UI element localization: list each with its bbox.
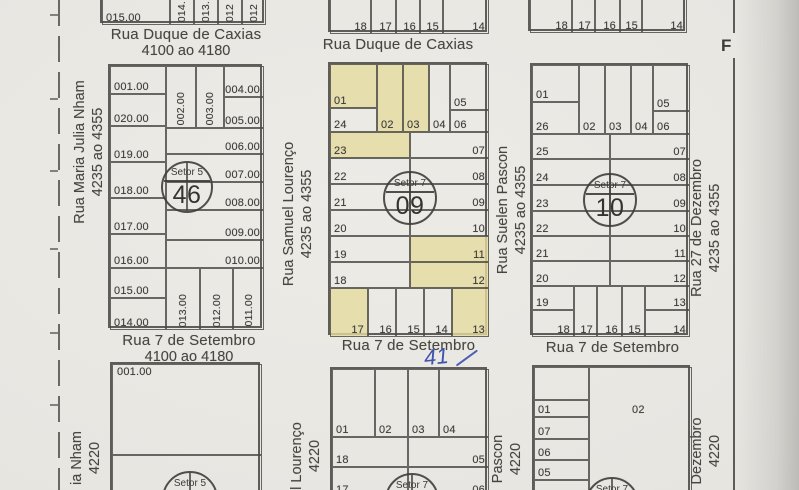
street-label-samuel-lourenco: Rua Samuel Lourenço 4235 ao 4355 (280, 142, 316, 286)
lot-cell-04: 04 (429, 64, 450, 132)
lot-number: 26 (536, 121, 549, 133)
lot-cell-05: 05 (408, 437, 489, 467)
lot-cell-003.00: 003.00 (196, 66, 224, 128)
lot-number: 014. (176, 1, 188, 22)
lot-cell-017.00: 017.00 (110, 198, 166, 234)
lot-number: 16 (379, 324, 392, 336)
lot-cell-015.00: 015.00 (110, 268, 166, 298)
lot-cell-002.00: 002.00 (166, 66, 196, 128)
lot-number: 001.00 (117, 366, 152, 378)
lot-number: 22 (334, 171, 347, 183)
quadra-number: 09 (385, 192, 435, 221)
lot-number: 21 (334, 197, 347, 209)
lot-cell-05: 05 (653, 65, 690, 111)
lot-number: 05 (657, 98, 670, 110)
lot-number: 06 (472, 484, 485, 490)
lot-number: 16 (603, 20, 616, 32)
lot-cell-011.00: 011.00 (233, 268, 264, 330)
lot-cell-25: 25 (532, 134, 610, 159)
lot-cell-016.00: 016.00 (110, 234, 166, 268)
lot-number: 016.00 (114, 255, 149, 267)
street-label-7-setembro-left: Rua 7 de Setembro 4100 ao 4180 (104, 332, 274, 365)
lot-number: 03 (407, 119, 420, 131)
lot-number: 02 (632, 404, 645, 416)
lot-number: 07 (472, 145, 485, 157)
lot-cell-01: 01 (532, 65, 579, 102)
lot-cell-009.00: 009.00 (166, 210, 264, 240)
lot-number: 15 (628, 324, 641, 336)
lot-number: 09 (472, 197, 485, 209)
setor-quadra-symbol: Setor 710 (583, 173, 637, 227)
bottom-middle-block: 0102030418051706Setor 7 (330, 367, 487, 490)
lot-cell-14: 14 (645, 310, 690, 337)
map-left-boundary-line (58, 0, 60, 490)
lot-number: 015.00 (106, 12, 141, 24)
street-label-27-dezembro: Rua 27 de Dezembro 4235 ao 4355 (688, 159, 724, 297)
lot-number: 15 (426, 21, 439, 33)
lot-number: 10 (472, 223, 485, 235)
lot-number: 17 (351, 324, 364, 336)
lot-cell-07: 07 (610, 134, 690, 159)
lot-cell-01: 01 (534, 400, 589, 417)
lot-cell-18: 18 (332, 437, 408, 467)
lot-number: 009.00 (225, 227, 260, 239)
lot-cell-001.00: 001.00 (110, 66, 166, 94)
lot-cell-005.00: 005.00 (224, 97, 264, 128)
lot-number: 08 (673, 172, 686, 184)
lot-number: 20 (334, 223, 347, 235)
lot-cell-11: 11 (410, 236, 489, 262)
lot-cell-019.00: 019.00 (110, 126, 166, 162)
block-quadra-46: 001.00020.00002.00003.00004.00005.00019.… (108, 64, 262, 328)
street-name: Rua 7 de Setembro (104, 332, 274, 349)
lot-number: 020.00 (114, 113, 149, 125)
top-right-partial-block: 1817161514 (528, 0, 685, 31)
lot-cell-05: 05 (450, 64, 489, 110)
lot-cell-16: 16 (396, 0, 420, 34)
street-range: 4100 ao 4180 (104, 349, 274, 365)
lot-cell-15: 15 (396, 288, 424, 337)
handwritten-note: 41 (423, 343, 450, 371)
setor-label: Setor 7 (587, 484, 637, 490)
top-left-partial-block: 015.00014.013.012012 (100, 0, 264, 23)
margin-letter-f: F (721, 36, 731, 56)
lot-number: 23 (536, 198, 549, 210)
lot-number: 01 (536, 89, 549, 101)
lot-number: 017.00 (114, 221, 149, 233)
lot-cell-20: 20 (532, 261, 610, 286)
lot-number: 018.00 (114, 185, 149, 197)
lot-cell-010.00: 010.00 (166, 240, 264, 268)
street-label-duque-de-caxias-mid: Rua Duque de Caxias (318, 36, 478, 53)
street-label-lourenco-lower: l Lourenço 4220 (288, 422, 324, 490)
lot-cell-17: 17 (574, 286, 597, 337)
setor-quadra-symbol: Setor 546 (161, 161, 213, 213)
lot-number: 14 (670, 20, 683, 32)
map-right-boundary-line (733, 0, 735, 33)
street-range: 4235 ao 4355 (706, 159, 724, 297)
lot-number: 002.00 (175, 92, 187, 125)
lot-cell-01: 01 (332, 369, 375, 437)
lot-number: 18 (334, 275, 347, 287)
street-name: ia Nham (68, 431, 86, 485)
lot-number: 06 (538, 447, 551, 459)
lot-number: 019.00 (114, 149, 149, 161)
lot-number: 14 (673, 324, 686, 336)
lot-cell-14: 14 (642, 0, 687, 33)
lot-number: 015.00 (114, 285, 149, 297)
block-quadra-09: 0124020304050623072208210920101911181217… (328, 62, 487, 335)
lot-number: 01 (336, 424, 349, 436)
street-label-dezembro-lower: Dezembro 4220 (688, 418, 724, 485)
lot-cell-06: 06 (450, 110, 489, 132)
lot-number: 014.00 (114, 317, 149, 329)
street-label-pascon-lower: Pascon 4220 (489, 435, 525, 483)
lot-cell-006.00: 006.00 (166, 128, 264, 154)
lot-cell-17: 17 (371, 0, 396, 34)
street-name: Rua 7 de Setembro (330, 337, 487, 354)
street-range: 4100 ao 4180 (104, 43, 268, 59)
street-name: Rua Samuel Lourenço (280, 142, 298, 286)
lot-number: 13 (673, 297, 686, 309)
street-label-nham-lower: ia Nham 4220 (68, 431, 104, 485)
lot-number: 08 (472, 171, 485, 183)
lot-cell-03: 03 (605, 65, 631, 134)
lot-cell-19: 19 (330, 236, 410, 262)
lot-number: 03 (412, 424, 425, 436)
lot-number: 22 (536, 223, 549, 235)
lot-number: 012 (224, 4, 236, 22)
street-label-duque-de-caxias-left: Rua Duque de Caxias 4100 ao 4180 (104, 26, 268, 59)
lot-number: 25 (536, 146, 549, 158)
lot-cell-012: 012 (242, 0, 266, 25)
lot-number: 15 (625, 20, 638, 32)
lot-cell-15: 15 (420, 0, 443, 34)
lot-cell-17: 17 (330, 288, 368, 337)
lot-number: 013. (200, 1, 212, 22)
lot-number: 12 (472, 275, 485, 287)
lot-number: 01 (334, 95, 347, 107)
boundary-tick (50, 332, 58, 334)
lot-cell-03: 03 (408, 369, 439, 437)
lot-cell-01: 01 (330, 64, 377, 108)
boundary-tick (50, 170, 58, 172)
lot-cell-015.00: 015.00 (102, 0, 170, 25)
lot-number: 010.00 (225, 255, 260, 267)
lot-cell-02: 02 (579, 65, 605, 134)
lot-number: 001.00 (114, 81, 149, 93)
lot-cell-12: 12 (610, 261, 690, 286)
bottom-right-block: 0107060502Setor 7 (532, 365, 690, 490)
lot-cell-018.00: 018.00 (110, 162, 166, 198)
lot-number: 17 (578, 20, 591, 32)
lot-number: 011.00 (243, 294, 255, 327)
lot-number: 14 (435, 324, 448, 336)
street-range: 4220 (306, 422, 324, 490)
lot-cell-06: 06 (653, 111, 690, 134)
lot-cell-21: 21 (532, 236, 610, 261)
lot-cell-004.00: 004.00 (224, 66, 264, 97)
lot-cell-15: 15 (620, 0, 642, 33)
lot-number: 04 (635, 121, 648, 133)
setor-label: Setor 5 (163, 167, 211, 178)
lot-number: 24 (334, 119, 347, 131)
lot-number: 14 (472, 21, 485, 33)
lot-cell-16: 16 (597, 286, 622, 337)
lot-cell-013.00: 013.00 (166, 268, 200, 330)
lot-number: 07 (673, 146, 686, 158)
lot-cell-012.00: 012.00 (200, 268, 233, 330)
setor-label: Setor 7 (387, 480, 437, 490)
lot-cell-15: 15 (622, 286, 645, 337)
boundary-tick (50, 98, 58, 100)
lot-number: 05 (454, 97, 467, 109)
lot-number: 18 (557, 324, 570, 336)
lot-number: 005.00 (225, 115, 260, 127)
setor-quadra-symbol: Setor 709 (383, 171, 437, 225)
lot-number: 012.00 (211, 294, 223, 327)
lot-cell-23: 23 (330, 132, 410, 158)
street-range: 4235 ao 4355 (89, 80, 107, 223)
lot-cell-013.: 013. (194, 0, 218, 25)
setor-label: Setor 5 (164, 478, 216, 489)
lot-number: 04 (443, 424, 456, 436)
lot-cell-16: 16 (595, 0, 620, 33)
block-quadra-10: 0126020304050625072408230922102111201219… (530, 63, 688, 335)
street-name: Rua Duque de Caxias (104, 26, 268, 43)
lot-number: 17 (379, 21, 392, 33)
street-label-7-setembro-mid: Rua 7 de Setembro (330, 337, 487, 354)
lot-number: 11 (674, 248, 686, 260)
boundary-tick (50, 404, 58, 406)
lot-number: 19 (536, 297, 549, 309)
lot-cell-012: 012 (218, 0, 242, 25)
lot-cell (534, 480, 589, 490)
lot-cell-02: 02 (589, 367, 692, 490)
setor-label: Setor 7 (585, 180, 635, 191)
lot-cell-18: 18 (330, 262, 410, 288)
lot-number: 006.00 (225, 141, 260, 153)
lot-number: 02 (379, 424, 392, 436)
lot-cell-001.00: 001.00 (112, 364, 262, 455)
lot-cell-020.00: 020.00 (110, 94, 166, 126)
lot-cell-26: 26 (532, 102, 579, 134)
street-name: Rua 27 de Dezembro (688, 159, 706, 297)
lot-number: 17 (580, 324, 593, 336)
street-name: Pascon (489, 435, 507, 483)
street-range: 4220 (86, 431, 104, 485)
lot-number: 09 (673, 198, 686, 210)
lot-number: 008.00 (225, 197, 260, 209)
lot-cell-05: 05 (534, 460, 589, 480)
street-range: 4235 ao 4355 (298, 142, 316, 286)
street-range: 4220 (507, 435, 525, 483)
lot-number: 003.00 (204, 92, 216, 125)
lot-cell-18: 18 (330, 0, 371, 34)
lot-number: 11 (473, 249, 485, 261)
lot-cell-014.00: 014.00 (110, 298, 166, 330)
street-label-maria-julia-nham: Rua Maria Julia Nham 4235 ao 4355 (71, 80, 107, 223)
lot-number: 16 (605, 324, 618, 336)
lot-number: 013.00 (177, 294, 189, 327)
street-name: Rua Maria Julia Nham (71, 80, 89, 223)
lot-cell-06: 06 (534, 439, 589, 460)
lot-number: 06 (657, 121, 670, 133)
lot-number: 18 (336, 454, 349, 466)
lot-number: 12 (673, 273, 686, 285)
lot-number: 21 (536, 248, 549, 260)
lot-number: 04 (433, 119, 446, 131)
lot-cell-12: 12 (410, 262, 489, 288)
quadra-number: 46 (163, 181, 211, 210)
lot-number: 05 (472, 454, 485, 466)
lot-cell-02: 02 (377, 64, 403, 132)
scan-edge-shadow (735, 0, 799, 490)
boundary-tick (50, 248, 58, 250)
street-name: Rua Duque de Caxias (318, 36, 478, 53)
lot-cell-16: 16 (368, 288, 396, 337)
lot-cell-11: 11 (610, 236, 690, 261)
lot-cell-04: 04 (439, 369, 489, 437)
street-name: Rua Suelen Pascon (494, 146, 512, 274)
lot-cell-18: 18 (532, 310, 574, 337)
block-quadra-23: 001.00Setor 523 (110, 362, 260, 490)
lot-cell-014.: 014. (170, 0, 194, 25)
lot-cell-13: 13 (452, 288, 489, 337)
lot-cell-19: 19 (532, 286, 574, 310)
lot-number: 20 (536, 273, 549, 285)
lot-number: 012 (248, 4, 260, 22)
lot-cell-02: 02 (375, 369, 408, 437)
street-range: 4235 ao 4355 (512, 146, 530, 274)
lot-number: 23 (334, 145, 347, 157)
lot-number: 05 (538, 467, 551, 479)
lot-cell-18: 18 (530, 0, 572, 33)
setor-label: Setor 7 (385, 178, 435, 189)
lot-number: 03 (609, 121, 622, 133)
street-name: Rua 7 de Setembro (534, 339, 691, 356)
lot-number: 01 (538, 404, 551, 416)
lot-number: 007.00 (225, 169, 260, 181)
lot-number: 004.00 (225, 84, 260, 96)
street-range: 4220 (706, 418, 724, 485)
lot-number: 16 (403, 21, 416, 33)
lot-cell-07: 07 (410, 132, 489, 158)
lot-cell (534, 367, 589, 400)
lot-cell-14: 14 (443, 0, 489, 34)
lot-cell-03: 03 (403, 64, 429, 132)
lot-number: 19 (334, 249, 347, 261)
boundary-tick (50, 14, 58, 16)
street-name: Dezembro (688, 418, 706, 485)
street-name: l Lourenço (288, 422, 306, 490)
lot-cell-13: 13 (645, 286, 690, 310)
lot-cell-04: 04 (631, 65, 653, 134)
lot-cell-24: 24 (330, 108, 377, 132)
lot-cell-07: 07 (534, 417, 589, 439)
lot-number: 15 (407, 324, 420, 336)
street-label-7-setembro-right: Rua 7 de Setembro (534, 339, 691, 356)
lot-number: 07 (538, 426, 551, 438)
lot-number: 02 (381, 119, 394, 131)
lot-number: 13 (472, 324, 485, 336)
top-middle-partial-block: 1817161514 (328, 0, 487, 32)
lot-number: 17 (336, 484, 349, 490)
lot-number: 24 (536, 172, 549, 184)
lot-cell-14: 14 (424, 288, 452, 337)
lot-number: 18 (555, 20, 568, 32)
lot-number: 06 (454, 119, 467, 131)
lot-number: 10 (673, 223, 686, 235)
lot-cell-17: 17 (572, 0, 595, 33)
map-right-boundary-line (733, 58, 735, 490)
lot-number: 02 (583, 121, 596, 133)
street-label-suelen-pascon: Rua Suelen Pascon 4235 ao 4355 (494, 146, 530, 274)
quadra-number: 10 (585, 194, 635, 223)
lot-number: 18 (354, 21, 367, 33)
cadastral-map-page: F 015.00014.013.012012 1817161514 181716… (0, 0, 799, 490)
